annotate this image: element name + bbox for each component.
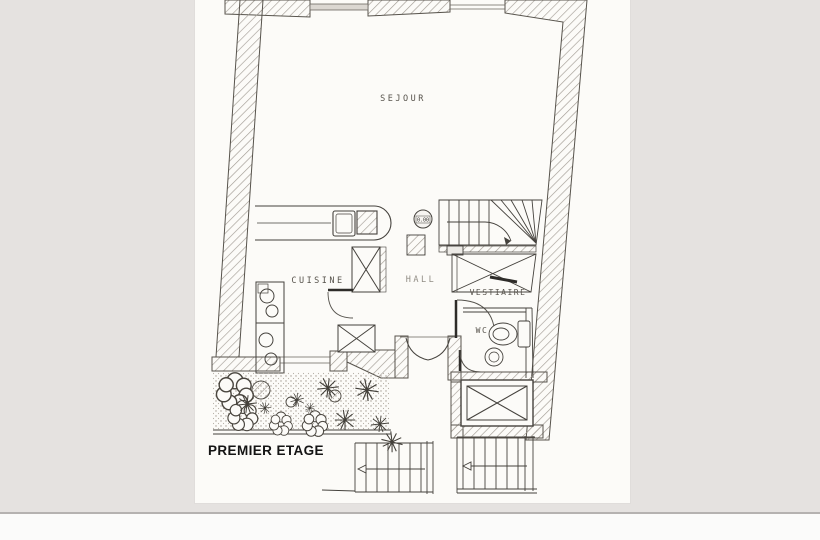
double-door: [406, 338, 450, 360]
service-stair-left: [322, 441, 433, 494]
hall-duct-box: [407, 235, 425, 255]
cuisine-door: [328, 290, 353, 318]
room-label-cuisine: CUISINE: [258, 276, 378, 286]
scanned-floor-plan-page: 0.00: [0, 0, 820, 540]
room-label-hall: HALL: [361, 275, 481, 285]
plan-paper: 0.00: [195, 0, 630, 503]
stair-void: [452, 254, 536, 292]
wc-door-arc: [460, 350, 481, 372]
kitchen-counter: [255, 206, 391, 240]
duct-boxes: [338, 247, 386, 352]
floor-plan-drawing: 0.00: [195, 0, 630, 503]
room-label-sejour: SEJOUR: [343, 94, 463, 104]
footer-band: [0, 514, 820, 540]
service-stair-right: [457, 436, 537, 493]
elevator-shaft: [461, 380, 533, 426]
room-label-vestiaire: VESTIAIRE: [438, 288, 558, 297]
top-window-1: [310, 4, 368, 10]
window-openings: [280, 4, 505, 363]
wc-room: [460, 308, 533, 378]
counter-hob: [357, 211, 377, 234]
wash-basin: [485, 348, 503, 366]
main-staircase: [439, 200, 542, 255]
level-marker: 0.00: [414, 210, 432, 228]
room-label-wc: WC: [422, 326, 542, 335]
floor-title: PREMIER ETAGE: [208, 443, 324, 458]
level-marker-value: 0.00: [417, 218, 429, 224]
